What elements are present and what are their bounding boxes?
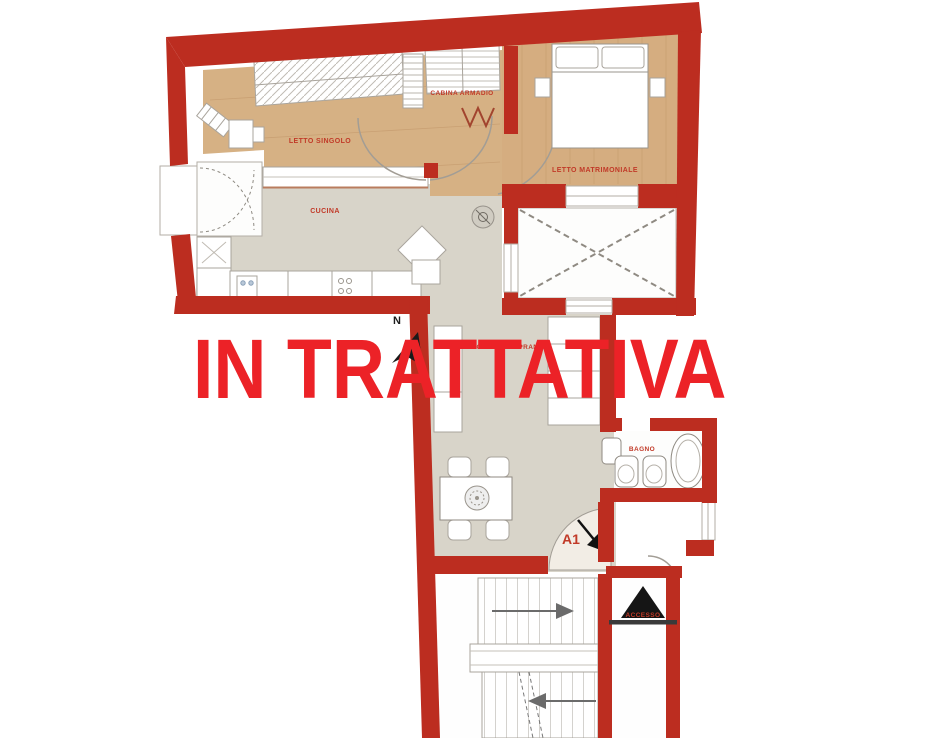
balcony-door <box>160 162 262 236</box>
entrance-label: A1 <box>562 531 580 547</box>
double-bed <box>535 44 665 148</box>
ladder <box>403 54 423 108</box>
staircase <box>470 578 598 738</box>
room-label-cucina: CUCINA <box>310 208 340 215</box>
room-label-letto-matrimoniale: LETTO MATRIMONIALE <box>552 167 638 174</box>
room-label-bagno: BAGNO <box>629 446 655 453</box>
nightstand <box>650 78 665 97</box>
room-label-letto-singolo: LETTO SINGOLO <box>289 138 351 145</box>
sideboard <box>263 167 428 188</box>
nightstand <box>535 78 550 97</box>
status-watermark: IN TRATTATIVA <box>193 327 726 411</box>
void-room <box>518 208 676 298</box>
room-label-cabina-armadio: CABINA ARMADIO <box>430 90 493 97</box>
floor-symbol <box>472 206 494 228</box>
access-label: ACCESSO <box>626 612 661 619</box>
floor-plan: LETTO SINGOLO CABINA ARMADIO LETTO MATRI… <box>0 0 940 738</box>
